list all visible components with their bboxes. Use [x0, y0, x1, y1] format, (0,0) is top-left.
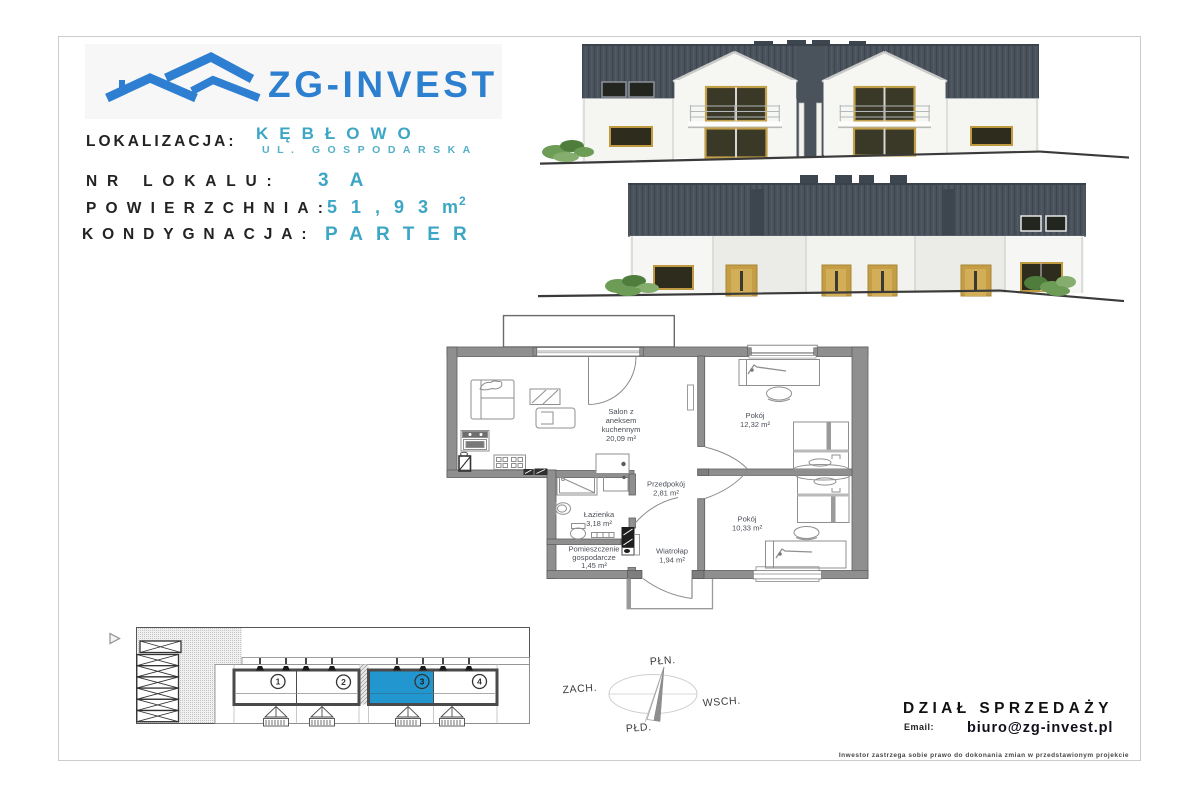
svg-text:2,81 m²: 2,81 m² [653, 489, 679, 498]
svg-text:PŁD.: PŁD. [626, 721, 653, 735]
svg-text:Pokój: Pokój [746, 411, 765, 420]
svg-text:ZG-INVEST: ZG-INVEST [268, 64, 498, 105]
svg-text:POWIERZCHNIA:: POWIERZCHNIA: [86, 200, 332, 217]
svg-text:LOKALIZACJA:: LOKALIZACJA: [86, 133, 237, 150]
svg-text:aneksem: aneksem [606, 416, 637, 425]
svg-text:1,45 m²: 1,45 m² [581, 561, 607, 570]
svg-text:12,32 m²: 12,32 m² [740, 420, 770, 429]
svg-text:10,33 m²: 10,33 m² [732, 524, 762, 533]
svg-text:3,18 m²: 3,18 m² [586, 519, 612, 528]
svg-text:UL. GOSPODARSKA: UL. GOSPODARSKA [262, 144, 478, 156]
svg-text:3: 3 [420, 677, 425, 687]
svg-text:Wiatrołap: Wiatrołap [656, 547, 688, 556]
svg-text:1: 1 [276, 677, 281, 687]
svg-text:2: 2 [341, 677, 346, 687]
svg-text:Email:: Email: [904, 722, 934, 732]
svg-text:PŁN.: PŁN. [650, 654, 677, 668]
svg-text:biuro@zg-invest.pl: biuro@zg-invest.pl [967, 720, 1113, 736]
svg-text:NR LOKALU:: NR LOKALU: [86, 173, 281, 190]
svg-text:KONDYGNACJA:: KONDYGNACJA: [82, 226, 315, 243]
svg-text:20,09 m²: 20,09 m² [606, 434, 636, 443]
svg-text:KĘBŁOWO: KĘBŁOWO [256, 124, 422, 143]
svg-text:51,93m: 51,93m [327, 197, 472, 217]
svg-text:Salon z: Salon z [608, 407, 634, 416]
svg-text:PARTER: PARTER [325, 224, 480, 245]
svg-text:Łazienka: Łazienka [584, 510, 615, 519]
svg-text:Inwestor zastrzega sobie prawo: Inwestor zastrzega sobie prawo do dokona… [839, 752, 1129, 759]
svg-text:Przedpokój: Przedpokój [647, 480, 685, 489]
svg-text:4: 4 [477, 677, 482, 687]
svg-text:kuchennym: kuchennym [602, 425, 641, 434]
svg-text:2: 2 [459, 194, 466, 208]
svg-text:1,94 m²: 1,94 m² [659, 556, 685, 565]
svg-text:Pokój: Pokój [738, 515, 757, 524]
svg-text:3A: 3A [318, 170, 384, 191]
svg-text:DZIAŁ SPRZEDAŻY: DZIAŁ SPRZEDAŻY [903, 700, 1113, 717]
svg-text:ZACH.: ZACH. [562, 682, 597, 696]
